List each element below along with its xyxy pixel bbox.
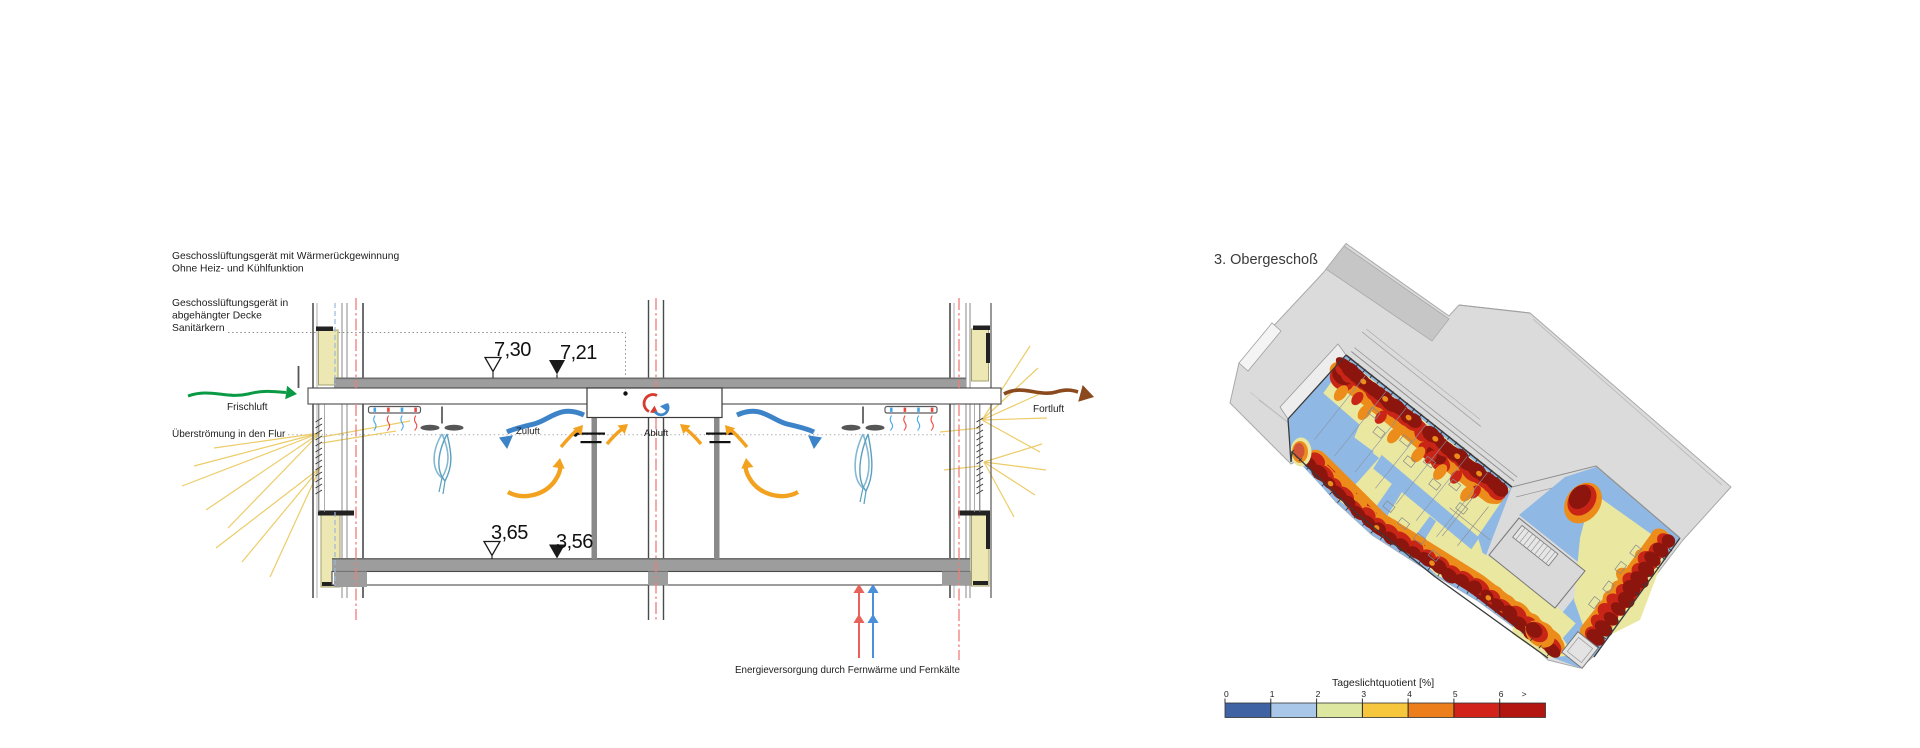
svg-text:Frischluft: Frischluft [227, 402, 268, 413]
svg-text:Geschosslüftungsgerät in: Geschosslüftungsgerät in [172, 298, 288, 309]
svg-text:4: 4 [1407, 689, 1412, 699]
svg-text:3,65: 3,65 [491, 522, 528, 544]
svg-text:7,30: 7,30 [494, 339, 531, 361]
svg-text:Tageslichtquotient [%]: Tageslichtquotient [%] [1332, 677, 1434, 689]
svg-text:Energieversorgung durch Fernwä: Energieversorgung durch Fernwärme und Fe… [735, 665, 960, 676]
svg-text:Ohne Heiz- und Kühlfunktion: Ohne Heiz- und Kühlfunktion [172, 264, 304, 275]
svg-text:Fortluft: Fortluft [1033, 404, 1064, 415]
svg-text:1: 1 [1270, 689, 1275, 699]
svg-text:7,21: 7,21 [560, 342, 597, 364]
svg-text:5: 5 [1453, 689, 1458, 699]
svg-text:2: 2 [1316, 689, 1321, 699]
svg-text:Abluft: Abluft [644, 428, 669, 439]
svg-text:6: 6 [1499, 689, 1504, 699]
svg-text:Überströmung in den Flur: Überströmung in den Flur [172, 428, 286, 440]
svg-text:3,56: 3,56 [556, 531, 593, 553]
svg-text:Sanitärkern: Sanitärkern [172, 323, 225, 334]
svg-text:0: 0 [1224, 689, 1229, 699]
svg-text:Zuluft: Zuluft [516, 426, 540, 437]
svg-text:3: 3 [1361, 689, 1366, 699]
svg-text:3. Obergeschoß: 3. Obergeschoß [1214, 252, 1318, 268]
svg-text:abgehängter Decke: abgehängter Decke [172, 311, 262, 322]
svg-text:>: > [1522, 689, 1527, 699]
svg-text:Geschosslüftungsgerät mit Wärm: Geschosslüftungsgerät mit Wärmerückgewin… [172, 251, 399, 262]
